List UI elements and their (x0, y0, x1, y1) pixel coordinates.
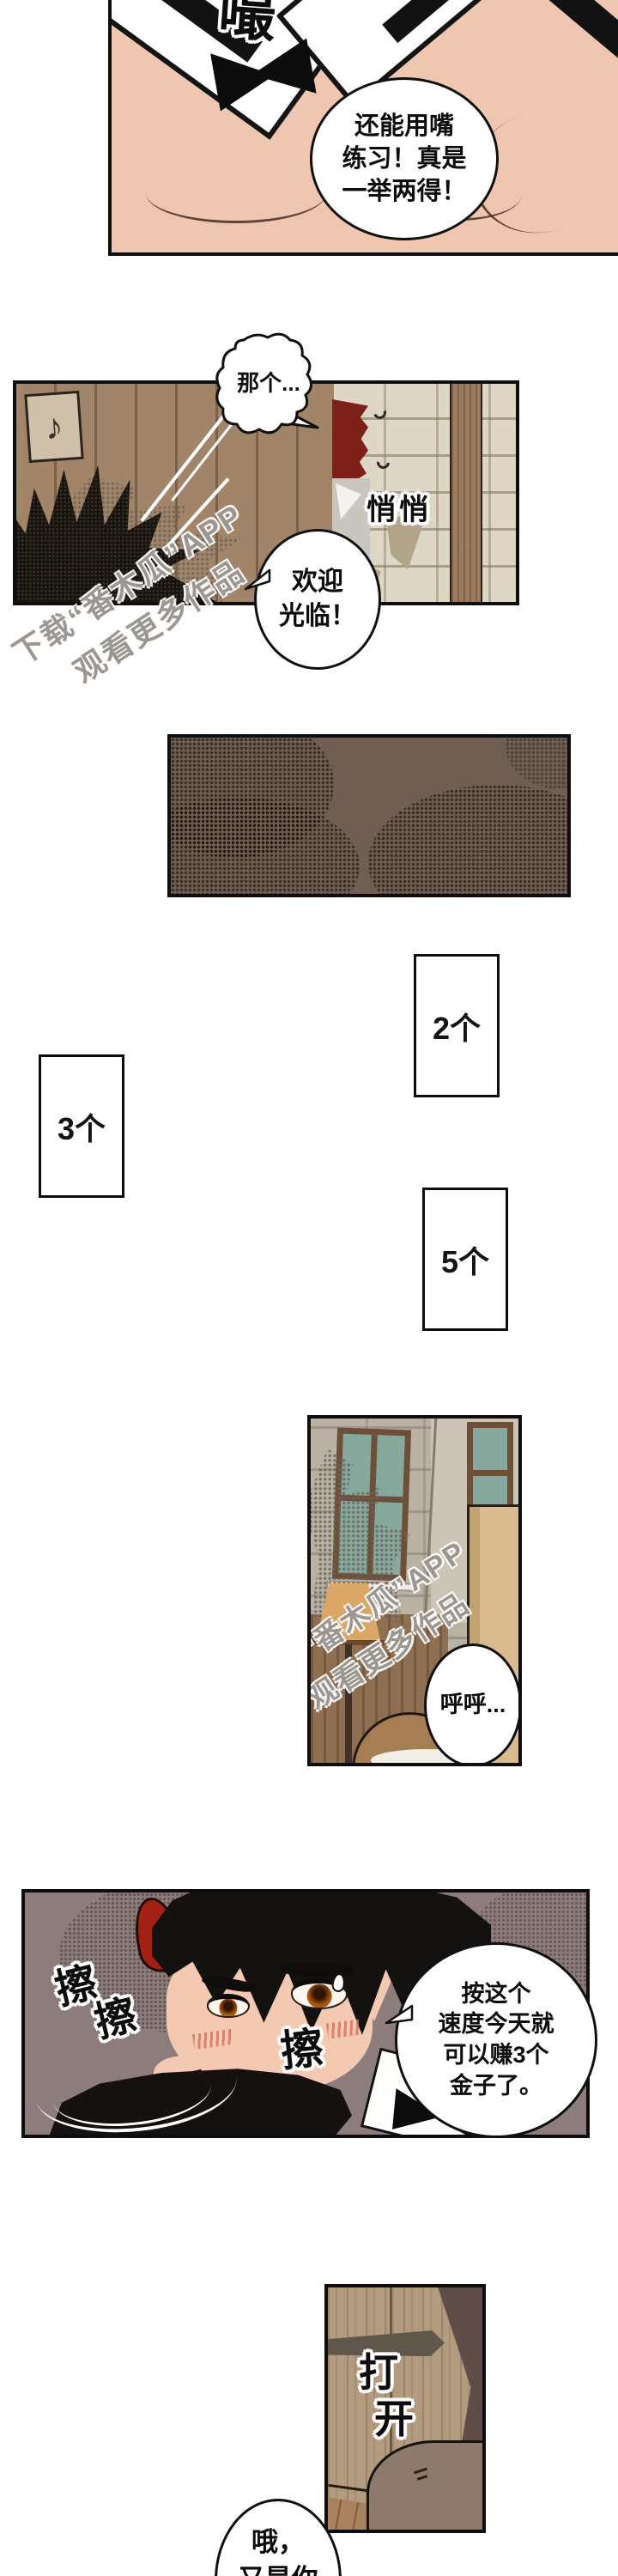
eye-left (207, 1994, 250, 2018)
count-box-3: 3个 (39, 1054, 124, 1198)
panel-7-door: 打 开 (324, 2284, 486, 2533)
halftone-cloud (506, 734, 571, 789)
panel-3-dark-blur (167, 734, 571, 897)
sfx-open-char2: 开 (374, 2399, 414, 2439)
skin-fold-line (146, 163, 326, 223)
black-strap (501, 0, 618, 125)
panel-5-room-interior: 下载“番木瓜”APP 观看更多作品 呼呼... (307, 1415, 522, 1766)
halftone-cloud (167, 798, 360, 897)
thought-text: 那个... (228, 366, 309, 398)
boot (367, 2440, 486, 2533)
speech-tail (244, 567, 271, 592)
iris-left (219, 1999, 237, 2017)
hanging-sign: ♪ (24, 391, 83, 463)
cloaked-figure (418, 2287, 486, 2449)
iris-right (307, 1984, 332, 2008)
window-mullion (473, 1470, 507, 1476)
count-box-5-label: 5个 (441, 1237, 489, 1282)
sfx-open-char1: 打 (359, 2353, 398, 2392)
halftone-cloud (368, 785, 571, 897)
speech-bubble-breathing: 呼呼... (424, 1643, 522, 1766)
sfx-wipe-3: 擦 (279, 2026, 326, 2074)
speech-bubble-welcome: 欢迎 光临！ (254, 529, 381, 670)
window-far (467, 1422, 513, 1515)
panel-1-torso-closeup: 嘬 还能用嘴 练习！真是 一举两得！ (108, 0, 618, 256)
count-box-2: 2个 (414, 954, 500, 1097)
music-note-icon: ♪ (44, 405, 64, 447)
count-box-5: 5个 (422, 1188, 508, 1331)
count-box-3-label: 3个 (58, 1104, 106, 1149)
wood-beam (450, 384, 482, 602)
sfx-sneak: 悄悄 (367, 495, 432, 525)
speech-tail (385, 2002, 414, 2030)
comic-page: 嘬 还能用嘴 练习！真是 一举两得！ ♪ 悄悄 那个... 欢迎 光临！ 下 (0, 0, 618, 2576)
speech-bubble-reply: 哦， 又是你 (215, 2499, 342, 2576)
count-box-2-label: 2个 (433, 1004, 481, 1048)
speech-bubble-practice: 还能用嘴 练习！真是 一举两得！ (310, 77, 499, 240)
sfx-slurp: 嘬 (217, 0, 277, 45)
speech-bubble-gold: 按这个 速度今天就 可以赚3个 金子了。 (395, 1942, 597, 2138)
